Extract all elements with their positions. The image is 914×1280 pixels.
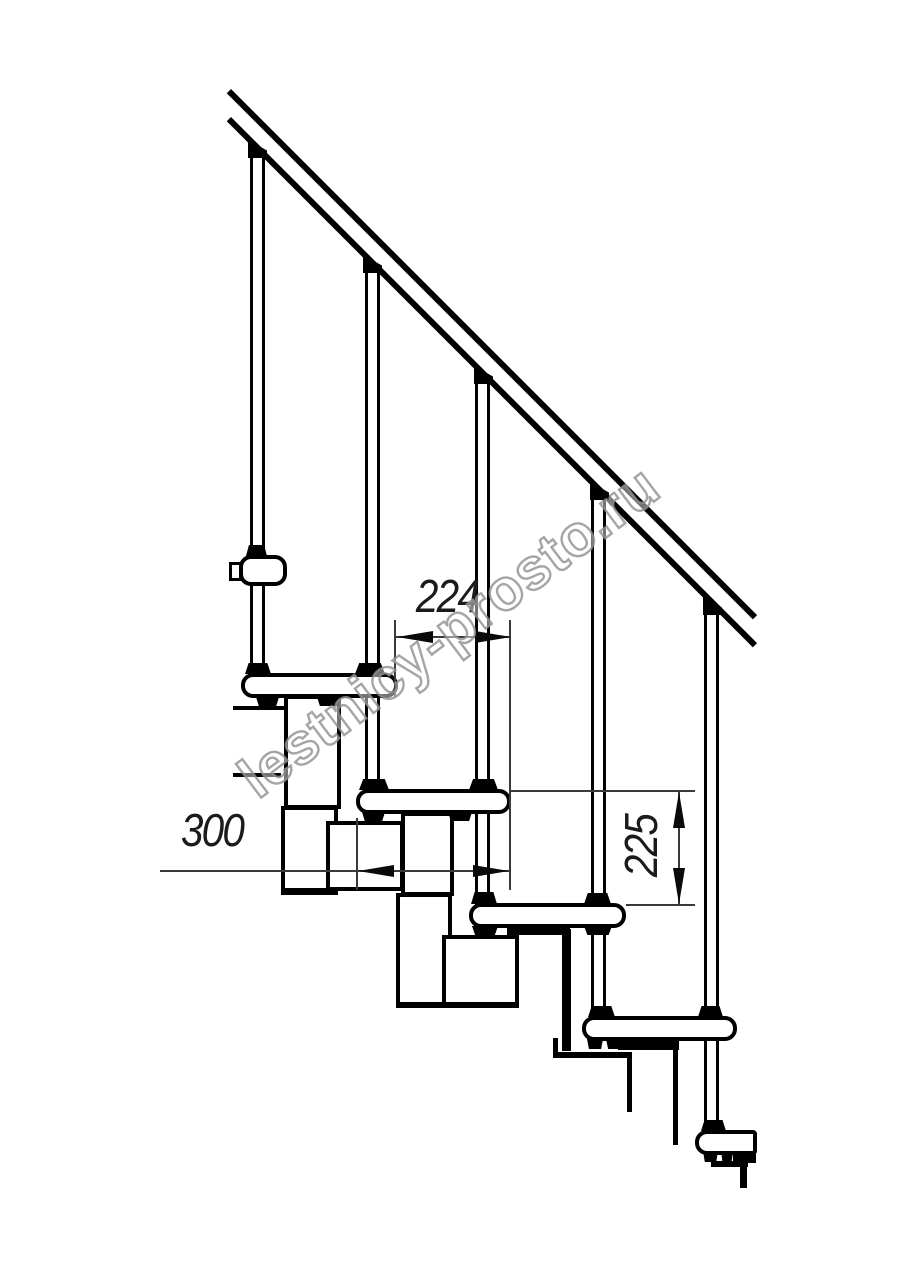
tread-foot bbox=[703, 1151, 718, 1162]
dim-225-arrow-down bbox=[673, 868, 685, 904]
dim-225-label: 225 bbox=[616, 795, 666, 897]
module-hook-line-d bbox=[740, 1161, 747, 1188]
tread-foot bbox=[448, 812, 472, 821]
tread-foot bbox=[606, 1039, 624, 1049]
tread-collar bbox=[701, 1120, 726, 1131]
dim-224-ext-left bbox=[394, 620, 396, 697]
tread-3 bbox=[469, 903, 626, 928]
tread-foot bbox=[362, 812, 385, 821]
module-column-line-3 bbox=[673, 1050, 678, 1145]
tread-collar bbox=[355, 663, 385, 674]
staircase-technical-drawing: 224 300 225 lestnicy-prosto.ru bbox=[0, 0, 914, 1280]
bracket-collar bbox=[246, 545, 267, 556]
tread-foot bbox=[584, 926, 612, 935]
tread-collar bbox=[584, 893, 611, 904]
baluster-4 bbox=[591, 494, 606, 1018]
dim-224-label: 224 bbox=[405, 572, 489, 620]
watermark: lestnicy-prosto.ru bbox=[0, 0, 914, 1280]
module-plate-under-tread4 bbox=[618, 1040, 679, 1050]
tread-collar bbox=[471, 892, 497, 904]
tread-collar bbox=[359, 779, 389, 790]
baluster-bracket bbox=[239, 555, 287, 586]
tread-foot bbox=[317, 697, 341, 706]
tread-collar bbox=[588, 1006, 615, 1017]
baluster-5 bbox=[704, 607, 719, 1132]
tread-foot bbox=[472, 926, 498, 935]
dim-224-arrow-right bbox=[475, 631, 511, 643]
dim-225-arrow-up bbox=[673, 792, 685, 828]
dim-300-arrow-right bbox=[473, 865, 509, 877]
module-hook-line-b bbox=[556, 1052, 630, 1058]
module-column-line-2 bbox=[627, 1052, 632, 1112]
dim-300-ext-left bbox=[356, 818, 358, 890]
tread-collar bbox=[698, 1006, 723, 1017]
module-box-3 bbox=[326, 821, 404, 891]
baluster-2 bbox=[365, 267, 380, 791]
module-box-4 bbox=[401, 812, 454, 896]
baluster-1 bbox=[250, 152, 265, 676]
dim-300-label: 300 bbox=[168, 806, 256, 854]
tread-foot bbox=[256, 697, 279, 706]
dim-224-ext-right bbox=[509, 620, 511, 890]
module-column-line-1 bbox=[562, 929, 571, 1051]
dim-300-line bbox=[160, 870, 510, 872]
tread-4 bbox=[582, 1016, 737, 1041]
tread-collar bbox=[469, 779, 498, 790]
landing-edge-bottom bbox=[233, 773, 281, 777]
tread-2 bbox=[356, 789, 511, 814]
tread-foot bbox=[587, 1039, 603, 1049]
module-box-6 bbox=[442, 935, 519, 1008]
module-box-1 bbox=[284, 695, 341, 809]
tread-foot bbox=[721, 1151, 733, 1162]
landing-edge-top bbox=[233, 706, 285, 710]
tread-collar bbox=[245, 663, 271, 674]
tread-1 bbox=[241, 673, 398, 698]
dim-225-ext-bottom bbox=[626, 904, 695, 906]
dim-225-ext-top bbox=[511, 790, 695, 792]
handrail-upper-line bbox=[227, 89, 757, 619]
dim-224-arrow-left bbox=[397, 631, 433, 643]
